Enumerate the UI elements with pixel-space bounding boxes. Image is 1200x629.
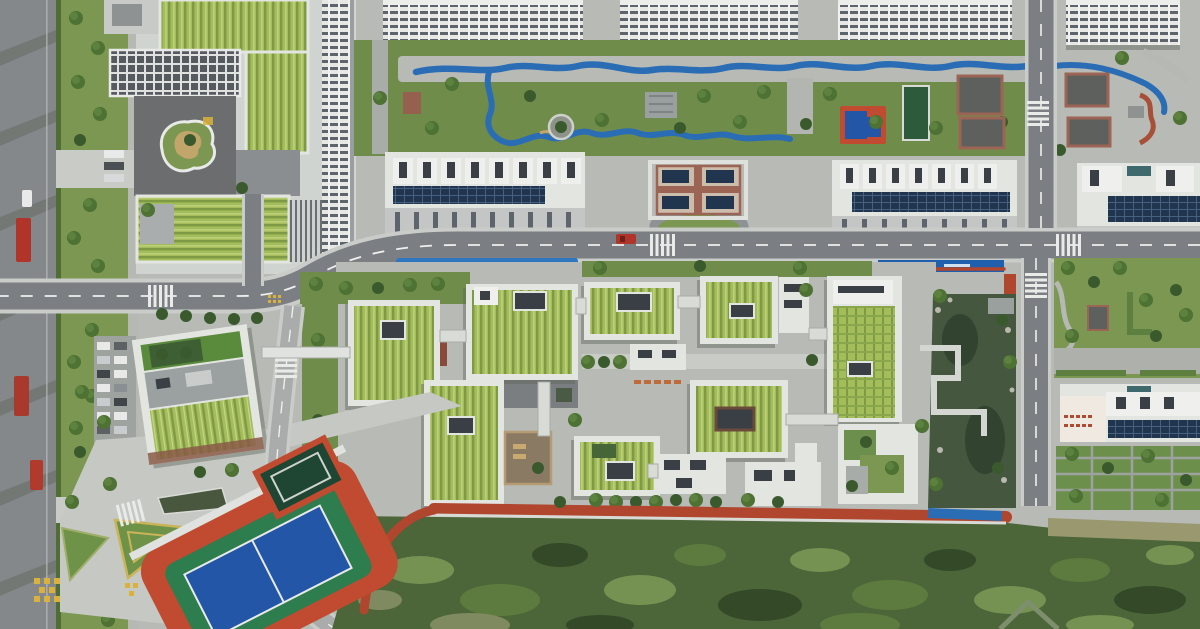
solar-array xyxy=(393,186,545,204)
tower-facade xyxy=(1066,0,1180,45)
green-roof-block xyxy=(463,284,578,384)
apartment-slab-west xyxy=(385,152,585,238)
green-roof-block xyxy=(571,436,660,500)
parked-truck xyxy=(30,460,43,490)
tower-facade xyxy=(838,0,1012,42)
lawn-roof-building xyxy=(132,324,269,469)
school-complex xyxy=(104,0,356,289)
south-building xyxy=(1060,384,1200,442)
solar-array xyxy=(1108,420,1200,438)
rooftop-pergola xyxy=(110,50,240,96)
white-roof-block xyxy=(656,454,726,494)
parked-van xyxy=(22,190,32,207)
terrace-roof-block xyxy=(838,424,918,504)
green-roof xyxy=(246,52,308,153)
east-district xyxy=(1054,258,1200,510)
white-roof-block xyxy=(630,344,686,370)
footbridge xyxy=(262,347,350,358)
left-street xyxy=(0,0,56,629)
louver-roof xyxy=(289,200,323,262)
tower-facade xyxy=(383,0,583,42)
green-roof-block xyxy=(824,276,902,426)
wild-field xyxy=(332,516,1200,629)
green-roof-block xyxy=(697,276,778,348)
wood-deck-courtyard xyxy=(505,432,551,484)
terraced-gardens xyxy=(1056,446,1200,510)
green-roof-cluster xyxy=(262,260,936,514)
aerial-photo xyxy=(0,0,1200,629)
green-roof-block xyxy=(687,380,788,462)
green-roof-block xyxy=(581,282,680,344)
blue-track-segment xyxy=(928,513,1002,516)
garden-shelter xyxy=(403,92,421,114)
parked-truck xyxy=(16,218,31,262)
parked-truck xyxy=(14,376,29,416)
rooftop-units xyxy=(840,164,997,189)
green-roof xyxy=(160,0,308,52)
lap-pool xyxy=(903,86,929,140)
solar-array xyxy=(852,192,1010,212)
tall-building xyxy=(322,0,354,274)
solar-array xyxy=(1108,196,1200,222)
red-car xyxy=(616,234,636,244)
apartment-slab-east xyxy=(832,160,1017,238)
aerial-photo-canvas xyxy=(0,0,1200,629)
